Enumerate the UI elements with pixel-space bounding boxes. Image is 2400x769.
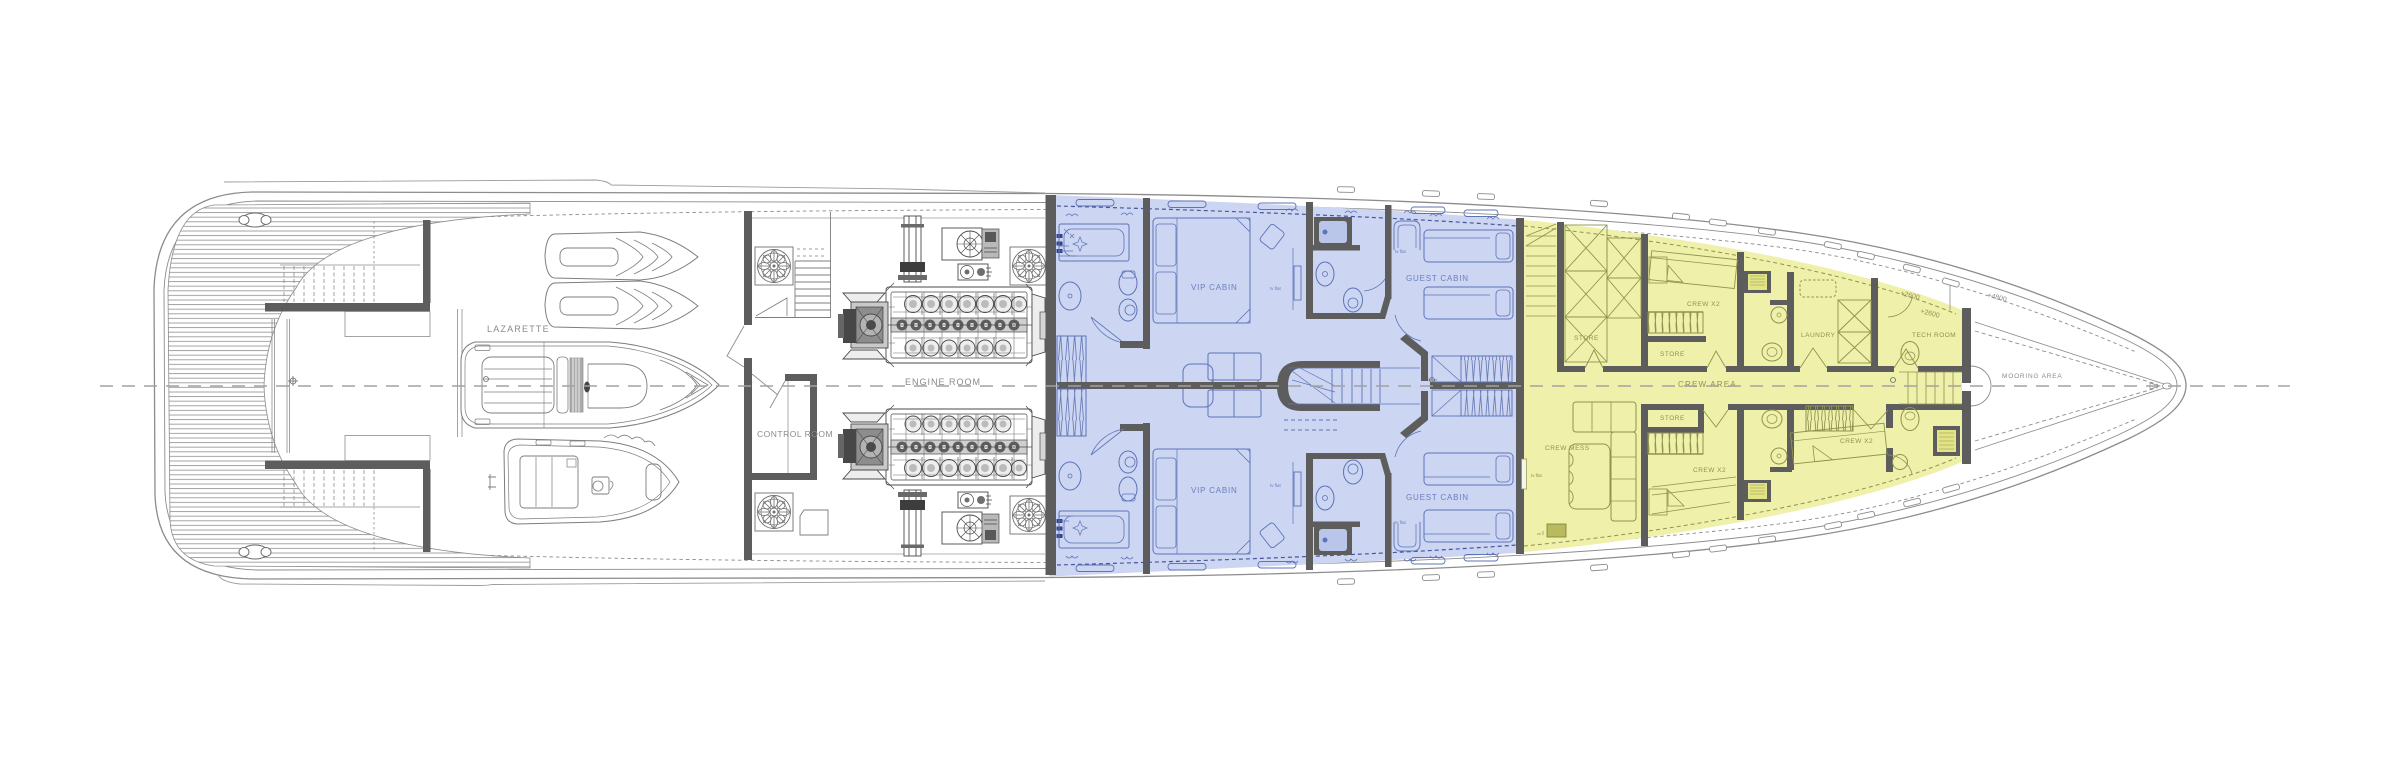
svg-text:CREW AREA: CREW AREA [1678, 380, 1737, 389]
svg-text:tv flat: tv flat [1531, 473, 1543, 478]
svg-text:MOORING AREA: MOORING AREA [2002, 373, 2063, 380]
svg-text:GUEST CABIN: GUEST CABIN [1406, 493, 1469, 502]
svg-text:tv flat: tv flat [1270, 286, 1282, 291]
svg-text:LAUNDRY: LAUNDRY [1801, 332, 1836, 339]
svg-text:STORE: STORE [1660, 415, 1685, 422]
svg-text:CREW MESS: CREW MESS [1545, 445, 1590, 452]
svg-text:CREW X2: CREW X2 [1693, 467, 1726, 474]
svg-text:STORE: STORE [1660, 351, 1685, 358]
svg-text:STORE: STORE [1574, 335, 1599, 342]
svg-text:tv flat: tv flat [1395, 520, 1407, 525]
svg-text:GUEST CABIN: GUEST CABIN [1406, 274, 1469, 283]
svg-text:tv flat: tv flat [1395, 249, 1407, 254]
svg-text:TECH ROOM: TECH ROOM [1912, 332, 1956, 339]
svg-text:VIP CABIN: VIP CABIN [1191, 486, 1238, 495]
svg-text:CREW X2: CREW X2 [1687, 301, 1720, 308]
svg-text:CREW X2: CREW X2 [1840, 438, 1873, 445]
svg-text:LAZARETTE: LAZARETTE [487, 324, 550, 334]
svg-text:VIP CABIN: VIP CABIN [1191, 283, 1238, 292]
svg-text:tv flat: tv flat [1270, 483, 1282, 488]
svg-text:CONTROL ROOM: CONTROL ROOM [757, 429, 833, 439]
